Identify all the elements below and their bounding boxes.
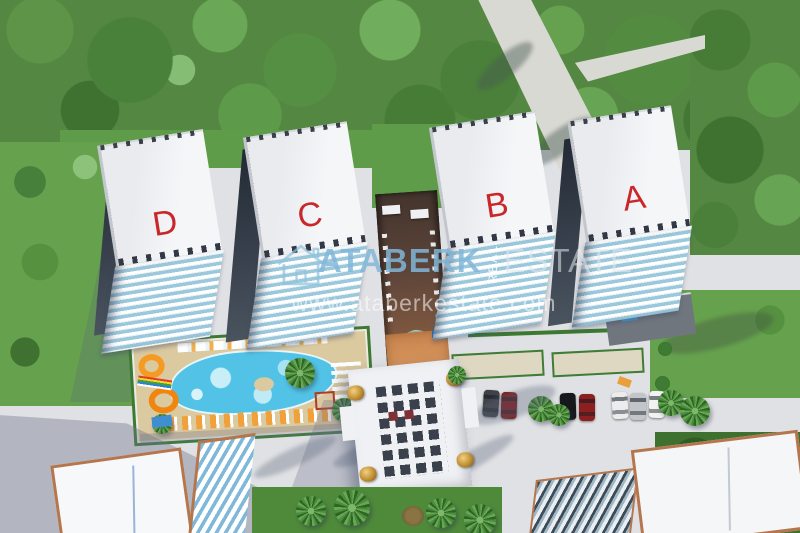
gold-ornament	[346, 385, 364, 402]
palm-tree	[334, 490, 370, 526]
gold-ornament	[359, 466, 377, 483]
palm-tree	[548, 404, 570, 426]
bush	[658, 342, 672, 356]
watermark-real: REAL	[486, 244, 500, 283]
bottom-right-balcony-facade	[526, 467, 640, 533]
bush	[655, 376, 670, 391]
watermark-url: www.ataberkestate.com	[256, 290, 592, 317]
gate-red-pane	[388, 411, 398, 421]
bottom-left-roof	[50, 447, 196, 533]
palm-tree	[296, 496, 326, 526]
palm-tree	[285, 358, 315, 388]
bottom-right-roof	[631, 430, 800, 533]
palm-tree	[426, 498, 456, 528]
gate-red-pane	[404, 410, 414, 420]
canopy	[382, 205, 401, 215]
water-slide-loop	[148, 387, 180, 415]
parked-car	[630, 393, 646, 420]
palm-tree	[680, 396, 710, 426]
gate-window-grid	[376, 381, 449, 479]
sports-court	[551, 348, 644, 378]
bottom-left-balcony-facade	[186, 433, 256, 533]
aerial-render-scene: D C B A	[0, 0, 800, 533]
palm-tree	[464, 504, 496, 533]
service-cart	[617, 376, 632, 388]
watermark-text-row: ATABERK REAL ESTATE	[318, 242, 633, 283]
parked-car	[579, 394, 595, 421]
canopy	[410, 209, 429, 219]
bush	[402, 506, 424, 526]
forest-right	[690, 0, 800, 255]
parked-car	[611, 392, 628, 420]
watermark: ATABERK REAL ESTATE www.ataberkestate.co…	[256, 228, 592, 320]
bottom-right-building	[522, 419, 800, 533]
rainbow-slide	[137, 375, 172, 390]
building-d-balcony-facade	[101, 249, 224, 353]
watermark-brand: ATABERK	[318, 242, 481, 280]
palm-tree	[448, 366, 466, 384]
watermark-estate: ESTATE	[503, 242, 632, 280]
